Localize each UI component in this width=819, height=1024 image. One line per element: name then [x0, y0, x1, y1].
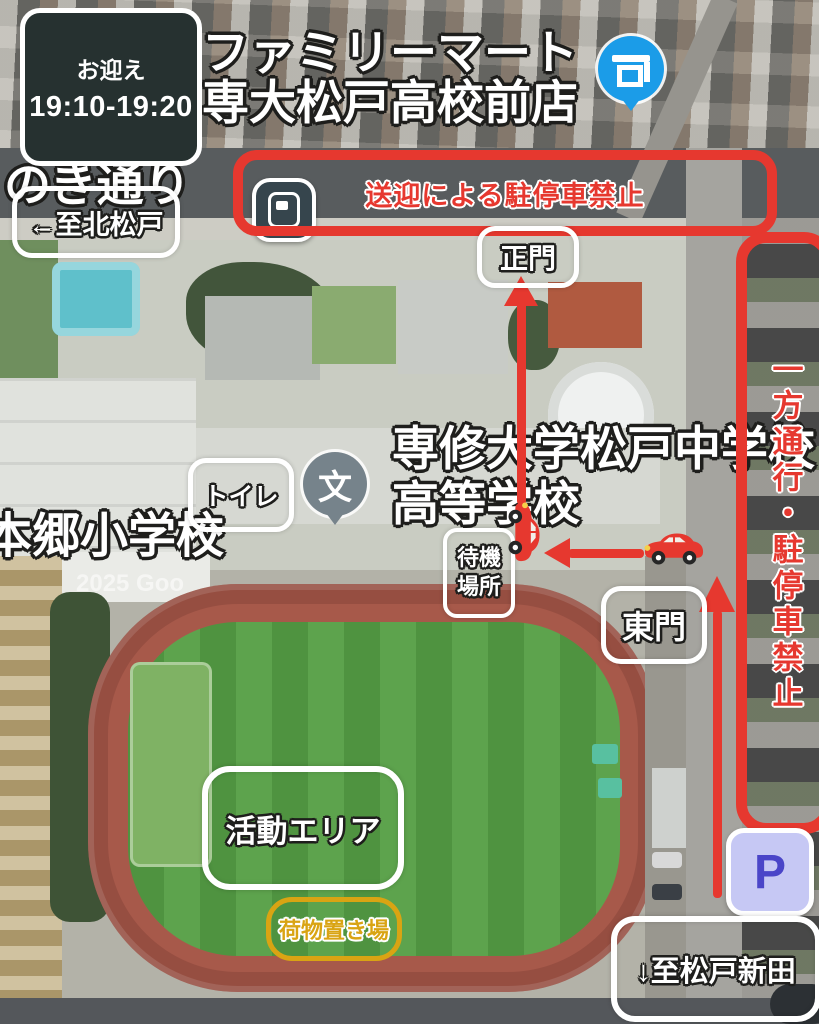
route-arrow-to-waiting-area — [568, 549, 644, 558]
toilet-label: トイレ — [188, 458, 294, 532]
satellite-building-orange-roof — [548, 282, 642, 348]
no-stopping-banner-text: 送迎による駐停車禁止 — [365, 174, 644, 213]
pin-tail — [618, 94, 644, 124]
store-name-line2: 専大松戸高校前店 — [188, 78, 592, 128]
satellite-field-mat — [592, 744, 618, 764]
pickup-time-box: お迎え 19:10-19:20 — [20, 8, 202, 166]
activity-area-label: 活動エリア — [202, 766, 404, 890]
annotated-satellite-map: のき通り ファミリーマート 専大松戸高校前店 本郷小学校 専修大学松戸中学校 高… — [0, 0, 819, 1024]
route-arrow-entry-road — [713, 610, 722, 898]
luggage-area-text: 荷物置き場 — [279, 913, 389, 945]
main-gate-label: 正門 — [477, 226, 579, 288]
store-name-label: ファミリーマート 専大松戸高校前店 — [188, 28, 592, 128]
parking-icon: P — [726, 828, 814, 916]
satellite-building — [205, 296, 320, 380]
school-map-pin[interactable]: 文 — [303, 452, 367, 516]
satellite-pool — [52, 262, 140, 336]
pin-tail — [323, 509, 347, 537]
east-gate-label: 東門 — [601, 586, 707, 664]
satellite-field-mat — [598, 778, 622, 798]
store-name-line1: ファミリーマート — [188, 28, 592, 78]
convenience-store-pin[interactable] — [598, 36, 664, 102]
satellite-building-green-roof — [312, 286, 396, 364]
storefront-icon — [612, 55, 650, 62]
luggage-area-label: 荷物置き場 — [266, 897, 402, 961]
no-stopping-banner: 送迎による駐停車禁止 — [233, 150, 777, 236]
satellite-parked-car — [652, 852, 682, 868]
one-way-no-parking-box: 一方通行・駐停車禁止 — [736, 232, 819, 834]
waiting-area-line1: 待機 — [457, 544, 501, 573]
parking-letter: P — [754, 845, 786, 900]
satellite-parked-car — [652, 884, 682, 900]
direction-label-matsudo-shinden: ↓至松戸新田 — [611, 916, 819, 1022]
satellite-building — [398, 280, 508, 374]
pickup-time: 19:10-19:20 — [29, 91, 193, 124]
school-glyph: 文 — [318, 460, 352, 509]
waiting-area-line2: 場所 — [457, 573, 501, 602]
storefront-icon — [644, 62, 650, 82]
direction-label-kita-matsudo: ←至北松戸 — [12, 186, 180, 258]
route-arrowhead-left-icon — [544, 538, 570, 568]
car-icon — [505, 501, 545, 563]
satellite-court — [130, 662, 212, 867]
pickup-title: お迎え — [77, 51, 146, 85]
map-watermark: 2025 Goo — [76, 570, 184, 598]
car-icon — [643, 528, 705, 568]
route-arrow-to-main-gate — [517, 300, 526, 505]
storefront-icon — [617, 65, 643, 87]
one-way-no-parking-text: 一方通行・駐停車禁止 — [763, 353, 808, 713]
